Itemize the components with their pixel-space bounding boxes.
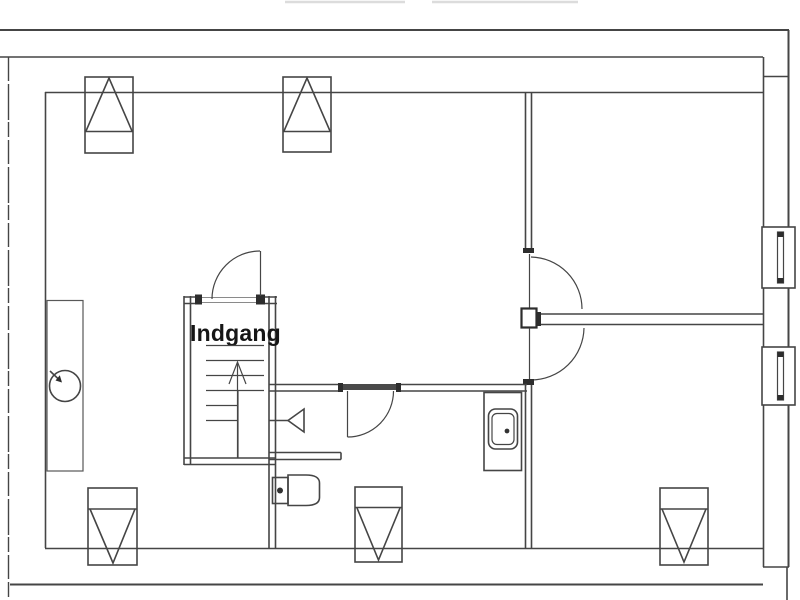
skylight-icon bbox=[355, 487, 402, 562]
skylight-frame bbox=[355, 487, 402, 562]
window-pane-end bbox=[778, 395, 784, 400]
wall-line bbox=[536, 314, 763, 325]
drain-dot bbox=[505, 429, 510, 434]
door-arc-upper bbox=[531, 257, 582, 309]
skylight-frame bbox=[283, 77, 331, 152]
skylight-triangle bbox=[357, 508, 400, 560]
window-pane-end bbox=[778, 278, 784, 283]
center-wall bbox=[522, 93, 585, 548]
bathroom-stub-wall bbox=[269, 453, 341, 460]
window-icon bbox=[762, 347, 795, 405]
skylights-bottom bbox=[88, 487, 708, 565]
exterior-walls bbox=[0, 30, 789, 600]
counter-outline bbox=[47, 301, 83, 472]
door-arc-lower bbox=[531, 328, 584, 380]
skylight-frame bbox=[88, 488, 137, 565]
shower-counter bbox=[484, 393, 522, 471]
door-threshold bbox=[342, 384, 398, 390]
stairs bbox=[206, 346, 264, 459]
kitchen-counter bbox=[47, 301, 83, 472]
window-pane-end bbox=[778, 352, 784, 357]
shower-tray-inner bbox=[492, 414, 514, 445]
skylight-icon bbox=[88, 488, 137, 565]
skylight-triangle bbox=[86, 78, 132, 131]
washbasin-icon bbox=[269, 409, 304, 432]
door-jamb bbox=[195, 295, 202, 305]
window-icon bbox=[762, 227, 795, 288]
stair-treads-half bbox=[206, 406, 238, 421]
skylight-icon bbox=[283, 77, 331, 152]
toilet-icon bbox=[273, 475, 320, 506]
entrance-door-arc bbox=[212, 251, 260, 299]
door-jamb bbox=[338, 383, 343, 392]
toilet-bowl bbox=[288, 475, 320, 506]
floor-plan-drawing: Indgang bbox=[0, 0, 800, 600]
window-pane-end bbox=[778, 232, 784, 237]
door-jamb bbox=[523, 248, 534, 253]
entrance-stairwell: Indgang bbox=[184, 251, 281, 548]
floor-plan-scan-page: Indgang bbox=[0, 0, 800, 600]
shower-tray-icon bbox=[484, 393, 522, 471]
door-jamb bbox=[396, 383, 401, 392]
bathroom-door-arc bbox=[348, 391, 394, 437]
skylight-icon bbox=[660, 488, 708, 565]
skylight-frame bbox=[660, 488, 708, 565]
skylight-triangle bbox=[284, 78, 330, 131]
washbasin-bowl bbox=[288, 409, 304, 432]
skylights-top bbox=[85, 77, 331, 153]
wall-junction-block bbox=[522, 309, 537, 328]
right-rooms-divider-wall bbox=[536, 312, 763, 326]
entrance-label: Indgang bbox=[190, 320, 281, 346]
stairwell-wall-bottom bbox=[184, 458, 275, 465]
toilet-flush-dot bbox=[277, 488, 283, 494]
skylight-triangle bbox=[90, 509, 135, 563]
wall-end-cap bbox=[536, 312, 541, 326]
skylight-triangle bbox=[662, 509, 706, 562]
wall-line bbox=[526, 93, 532, 249]
skylight-icon bbox=[85, 77, 133, 153]
right-wall-windows bbox=[762, 227, 795, 405]
door-opening bbox=[202, 294, 256, 306]
wall-line bbox=[526, 385, 532, 548]
